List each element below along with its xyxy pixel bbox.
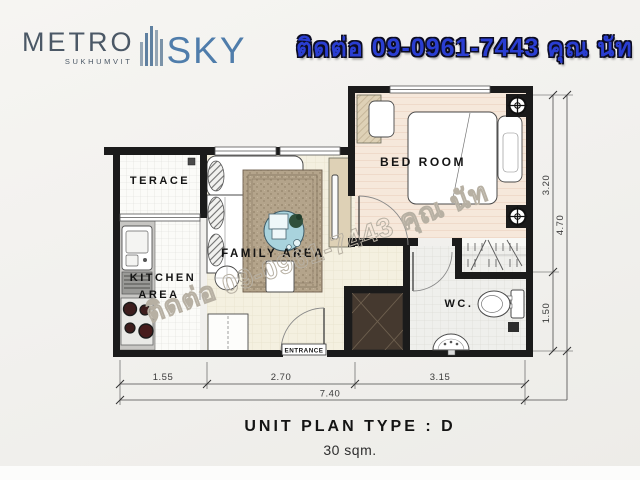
dim-1-50: 1.50 — [541, 303, 552, 324]
unit-plan-title: UNIT PLAN TYPE : D — [180, 418, 520, 436]
column-marker-icon — [506, 94, 529, 117]
desk-icon — [357, 95, 394, 143]
dim-1-55: 1.55 — [153, 372, 174, 383]
floor-plan: ENTRANCE TERACE KITCHEN AREA FAMILY AREA… — [0, 0, 640, 480]
room-label-bedroom: BED ROOM — [380, 155, 466, 169]
flyer-page: METRO SUKHUMVIT SKY ติดต่อ 09-0961-7443 … — [0, 0, 640, 480]
toilet-icon — [478, 290, 524, 318]
scan-edge — [0, 466, 640, 480]
terrace-drain-icon — [188, 158, 195, 165]
dim-3-20: 3.20 — [541, 175, 552, 196]
kitchen-counter — [119, 221, 155, 350]
dim-7-40: 7.40 — [320, 389, 341, 400]
column-marker-icon — [506, 205, 529, 228]
shoe-cabinet-icon — [208, 314, 248, 351]
room-label-kitchen-1: KITCHEN — [130, 272, 196, 284]
entrance-label: ENTRANCE — [282, 344, 326, 355]
bin-icon — [508, 322, 519, 332]
bedroom-window — [390, 86, 490, 93]
kitchen-pass-window — [120, 214, 200, 221]
shaft-area — [352, 293, 403, 350]
entrance-label-text: ENTRANCE — [285, 348, 324, 355]
dim-3-15: 3.15 — [430, 372, 451, 383]
dim-4-70: 4.70 — [555, 215, 566, 236]
room-label-wc: WC. — [445, 298, 474, 310]
unit-area-text: 30 sqm. — [180, 442, 520, 458]
dim-2-70: 2.70 — [271, 372, 292, 383]
chair-icon — [369, 101, 394, 137]
room-label-terrace: TERACE — [130, 175, 190, 187]
